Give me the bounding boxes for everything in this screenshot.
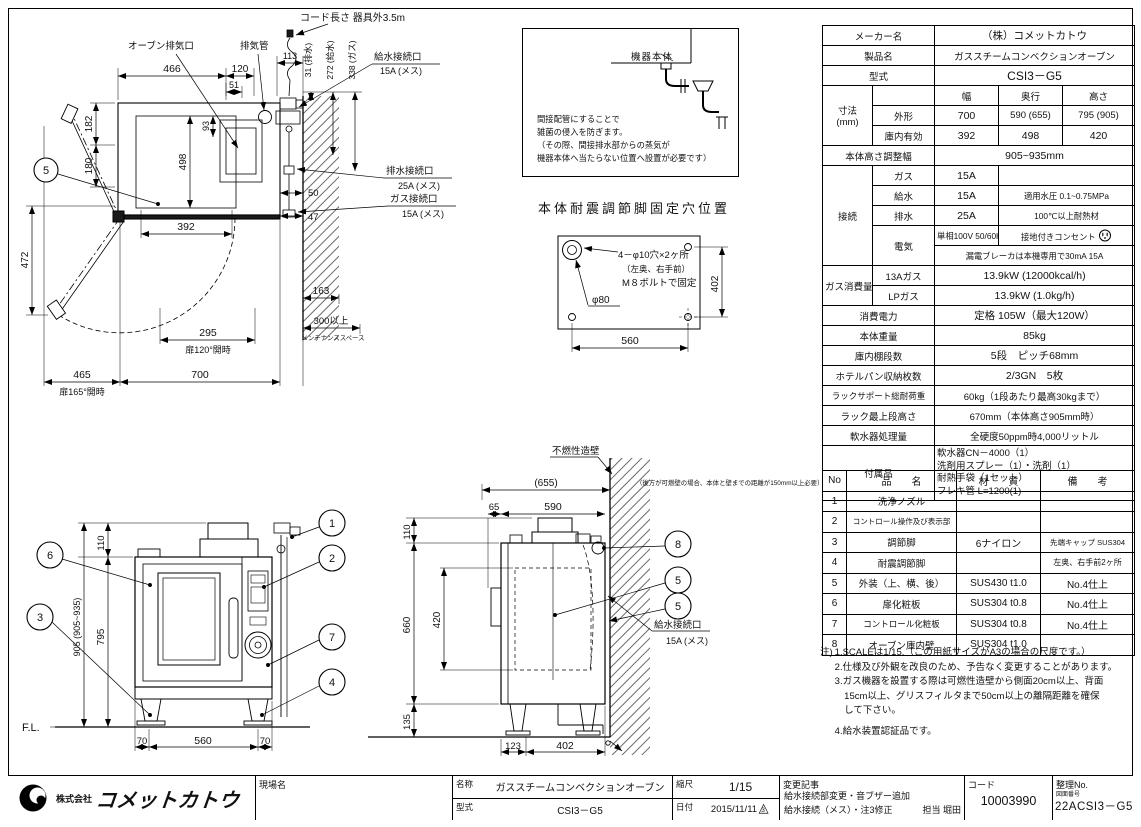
svg-text:47: 47 [308,212,319,223]
svg-text:163: 163 [313,286,330,297]
front-leaders [52,527,319,717]
maker-label: メーカー名 [823,26,935,46]
breaker-note: 漏電ブレーカは本機専用で30mA 15A [935,246,1135,266]
drawing-sheet: コード長さ 器具外3.5m オーブン排気口 排気管 給水接続口 15A (メス)… [0,0,1141,827]
machine-body-label: 機器本体 [631,49,673,63]
svg-text:50: 50 [308,188,319,199]
table-row: 7コントロール化粧板SUS304 t0.8No.4仕上 [823,614,1135,635]
dimensions-label: 寸法(mm) [823,86,873,146]
svg-text:扉165°開時: 扉165°開時 [59,386,105,397]
svg-text:7: 7 [329,632,335,644]
svg-text:700: 700 [191,369,209,381]
front-view: 6 1 2 7 3 4 110 795 905 (905~935) 70 560… [10,465,362,770]
svg-text:182: 182 [84,115,95,132]
svg-text:70: 70 [137,736,148,747]
svg-text:93: 93 [201,121,211,131]
person-in-charge: 担当 堀田 [922,803,961,816]
svg-text:123: 123 [505,741,521,752]
svg-text:6: 6 [47,550,53,562]
connection-label: 接続 [823,166,873,266]
drawing-notes: 注) 1.SCALEは1/15.（この用紙サイズがA3の場合の尺度です。） 2.… [820,646,1138,739]
model-value: CSI3－G5 [935,66,1135,86]
svg-text:排水接続口: 排水接続口 [386,165,434,177]
company-logo-cell: 株式会社 コメットカトウ [8,776,255,820]
table-row: 3調節脚6ナイロン先端キャップ SUS304 [823,532,1135,553]
svg-text:295: 295 [199,327,217,339]
svg-text:扉120°開時: 扉120°開時 [185,344,231,355]
company-name: コメットカトウ [94,784,241,813]
svg-text:402: 402 [556,740,574,752]
svg-text:465: 465 [73,369,91,381]
table-row: 2コントロール操作及び表示部 [823,512,1135,533]
name-model-cell: 名称ガススチームコンベクションオーブン 型式CSI3－G5 [452,776,672,820]
floor-level-label: F.L. [22,722,40,734]
plan-view: コード長さ 器具外3.5m オーブン排気口 排気管 給水接続口 15A (メス)… [8,8,523,463]
gas-consumption-label: ガス消費量 [823,266,873,306]
svg-text:110: 110 [402,524,413,539]
table-row: 6扉化粧板SUS304 t0.8No.4仕上 [823,594,1135,615]
code-value: 10003990 [965,794,1052,808]
svg-text:5: 5 [43,165,49,177]
svg-text:300以上: 300以上 [314,316,349,327]
svg-text:180: 180 [84,157,95,174]
outlet-icon [1098,229,1112,242]
svg-text:メンテナンススペース: メンテナンススペース [301,334,364,342]
scale-value: 1/15 [702,780,779,794]
company-logo [18,782,52,814]
svg-text:272 (給水): 272 (給水) [325,40,335,79]
svg-text:498: 498 [178,153,189,170]
fixing-texts: 4－φ10穴×2ヶ所 （左奥、右手前） M８ボルトで固定 φ80 402 560 [592,249,721,347]
svg-text:(655): (655) [534,478,557,489]
table-row: 1洗浄ノズル [823,491,1135,512]
svg-text:8: 8 [675,539,681,551]
svg-text:31 (排水): 31 (排水) [303,43,313,78]
svg-text:給水接続口: 給水接続口 [654,619,702,631]
product-name: ガススチームコンベクションオーブン [488,779,672,794]
svg-text:392: 392 [177,221,195,233]
date-value: 2015/11/11△3 [702,803,779,815]
svg-text:402: 402 [710,275,721,292]
svg-text:4: 4 [329,677,335,689]
fixing-hole-title: 本体耐震調節脚固定穴位置 [538,198,730,217]
svg-text:472: 472 [20,251,31,268]
svg-text:590: 590 [544,501,562,513]
svg-text:113: 113 [283,51,297,61]
svg-text:466: 466 [163,63,181,75]
svg-text:15A (メス): 15A (メス) [380,66,422,76]
revision-triangle: △3 [757,803,770,813]
svg-text:560: 560 [194,735,212,747]
front-texts: 6 1 2 7 3 4 110 795 905 (905~935) 70 560… [22,518,335,747]
oven-body-plan [118,103,280,219]
svg-text:51: 51 [229,80,239,90]
spec-table: メーカー名（株）コメットカトウ 製品名ガススチームコンベクションオーブン 型式C… [822,25,1135,501]
svg-text:4－φ10穴×2ヶ所: 4－φ10穴×2ヶ所 [618,249,689,261]
svg-text:1: 1 [329,518,335,530]
svg-text:2: 2 [329,553,335,565]
maker-value: （株）コメットカトウ [935,26,1135,46]
svg-text:15A (メス): 15A (メス) [666,636,708,646]
svg-text:795: 795 [96,628,107,645]
svg-text:135: 135 [402,714,413,730]
outlet-note: 接地付きコンセント [999,226,1135,246]
svg-text:給水接続口: 給水接続口 [374,51,422,63]
wall-label: 不燃性造壁 [552,445,600,457]
svg-text:φ80: φ80 [592,295,610,306]
scale-date-cell: 縮尺1/15 日付2015/11/11△3 [672,776,779,820]
svg-text:3: 3 [37,612,43,624]
side-wall-hatch [610,458,650,755]
title-block: 株式会社 コメットカトウ 現場名 名称ガススチームコンベクションオーブン 型式C… [8,775,1133,820]
balloon-5-plan: 5 [34,158,58,182]
reference-number-cell: 整理No. 図面番号 22ACSI3－G5 [1052,776,1133,820]
svg-text:15A (メス): 15A (メス) [402,209,444,219]
company-prefix: 株式会社 [56,792,92,805]
svg-text:120: 120 [232,64,249,75]
svg-text:5: 5 [675,575,681,587]
change-record-cell: 変更記事 給水接続部変更・音ブザー追加 給水接続（メス）・注3修正 担当 堀田 [779,776,964,820]
indirect-drain-note: 間接配管にすることで 雑菌の侵入を防ぎます。 （その際、間接排水部からの蒸気が … [537,113,711,165]
parts-table: No品 名材 質備 考 1洗浄ノズル 2コントロール操作及び表示部 3調節脚6ナ… [822,470,1135,656]
wall-note: （後方が可燃壁の場合、本体と壁までの距離が150mm以上必要） [636,478,823,487]
svg-text:560: 560 [621,335,639,347]
svg-text:420: 420 [432,611,443,628]
exhaust-pipe-label: 排気管 [240,40,269,52]
side-view: 不燃性造壁 （後方が可燃壁の場合、本体と壁までの距離が150mm以上必要） (6… [358,440,823,770]
site-name-cell: 現場名 [255,776,452,820]
cord-note: コード長さ 器具外3.5m [300,12,405,24]
model-number: CSI3－G5 [488,802,672,817]
fixing-hole-detail: 4－φ10穴×2ヶ所 （左奥、右手前） M８ボルトで固定 φ80 402 560 [530,222,820,392]
code-cell: コード 10003990 [964,776,1052,820]
svg-text:338 (ガス): 338 (ガス) [347,40,357,79]
svg-text:5: 5 [675,601,681,613]
drawing-number: 22ACSI3－G5 [1055,798,1133,814]
svg-text:25A (メス): 25A (メス) [398,181,440,191]
table-row: 5外装（上、横、後）SUS430 t1.0No.4仕上 [823,573,1135,594]
svg-text:70: 70 [260,736,271,747]
svg-text:660: 660 [402,616,413,633]
svg-text:（左奥、右手前）: （左奥、右手前） [622,264,690,274]
indirect-drain-detail-box: 機器本体 間接配管にすることで 雑菌の侵入を防ぎます。 （その際、間接排水部から… [522,28,739,177]
svg-text:905 (905~935): 905 (905~935) [72,598,82,657]
svg-text:M８ボルトで固定: M８ボルトで固定 [622,277,697,289]
svg-text:65: 65 [489,502,500,513]
table-row: 4耐震調節脚左奥、右手前2ヶ所 [823,553,1135,574]
svg-text:110: 110 [96,535,107,550]
exhaust-port-label: オーブン排気口 [128,40,194,52]
svg-text:ガス接続口: ガス接続口 [390,193,438,205]
front-geometry [55,523,310,727]
